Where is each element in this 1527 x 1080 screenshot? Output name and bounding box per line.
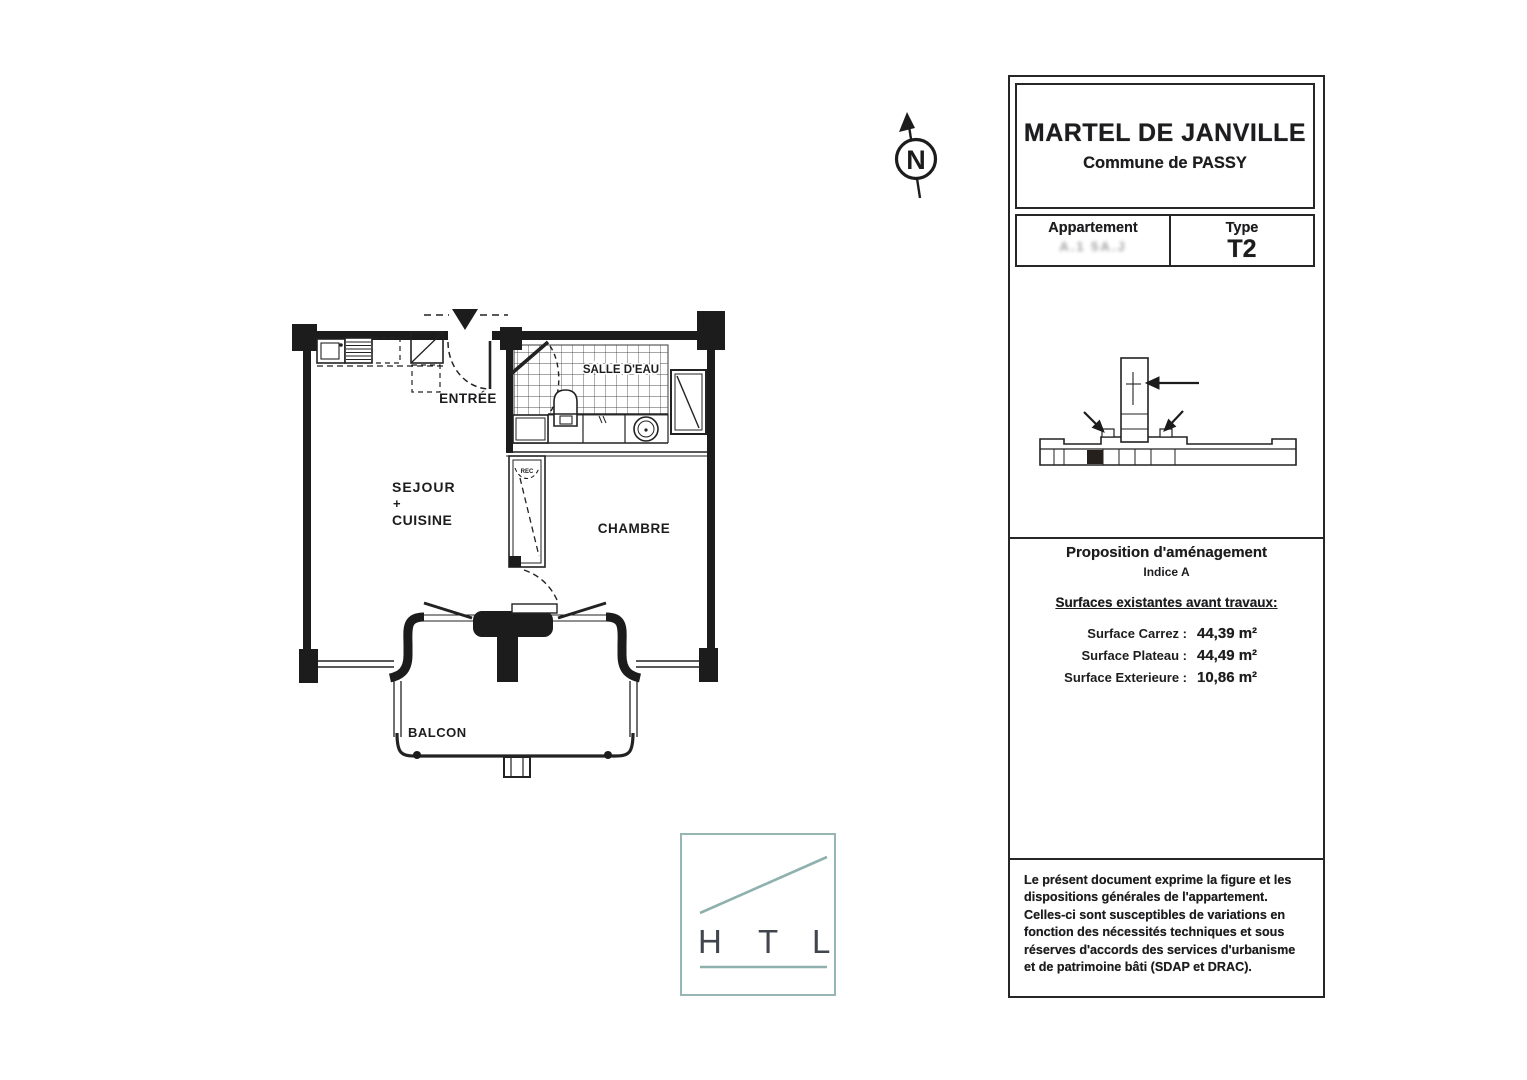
surface-label: Surface Plateau : bbox=[1010, 648, 1187, 663]
scanned-floor-plan-page: ENTRÉE SALLE D'EAU SEJOUR + CUISINE CHAM… bbox=[0, 0, 1527, 1080]
surface-value: 10,86 m² bbox=[1197, 669, 1257, 686]
floor-plan: ENTRÉE SALLE D'EAU SEJOUR + CUISINE CHAM… bbox=[288, 295, 748, 785]
apartment-location-marker bbox=[1087, 450, 1103, 464]
surfaces-heading: Surfaces existantes avant travaux: bbox=[1010, 595, 1323, 610]
apartment-type-row: Appartement A.1 5A.J Type T2 bbox=[1015, 214, 1315, 267]
entry-arrow-marker bbox=[452, 309, 478, 330]
kitchen-sink bbox=[321, 343, 339, 359]
label-closet-rec: REC bbox=[521, 469, 534, 475]
proposition-heading: Proposition d'aménagement bbox=[1010, 544, 1323, 561]
label-salle-deau: SALLE D'EAU bbox=[583, 364, 659, 376]
surface-value: 44,39 m² bbox=[1197, 625, 1257, 642]
logo-letter-h: H bbox=[698, 923, 722, 960]
type-cell: Type T2 bbox=[1171, 216, 1313, 265]
title-block-panel: MARTEL DE JANVILLE Commune de PASSY Appa… bbox=[1008, 75, 1325, 998]
label-plus: + bbox=[393, 496, 401, 511]
building-footprint bbox=[1040, 437, 1296, 465]
entrance-door bbox=[424, 309, 508, 389]
compass-arrowhead bbox=[899, 112, 915, 132]
legal-notice-box: Le présent document exprime la figure et… bbox=[1010, 858, 1323, 996]
logo-diagonal-line bbox=[700, 857, 827, 913]
apartment-cell: Appartement A.1 5A.J bbox=[1017, 216, 1171, 265]
surface-label: Surface Exterieure : bbox=[1010, 670, 1187, 685]
north-compass: N bbox=[884, 108, 948, 204]
commune-name: Commune de PASSY bbox=[1083, 154, 1247, 173]
label-balcon: BALCON bbox=[408, 725, 467, 740]
logo-letter-t: T bbox=[758, 923, 778, 960]
surface-row-carrez: Surface Carrez : 44,39 m² bbox=[1010, 622, 1323, 644]
label-entree: ENTRÉE bbox=[439, 391, 497, 406]
compass-north-letter: N bbox=[906, 145, 926, 175]
kitchen-counter bbox=[317, 332, 445, 392]
building-key-plan bbox=[1010, 267, 1323, 537]
type-label: Type bbox=[1226, 220, 1259, 236]
closet bbox=[509, 456, 557, 600]
project-title-box: MARTEL DE JANVILLE Commune de PASSY bbox=[1015, 83, 1315, 209]
surface-row-plateau: Surface Plateau : 44,49 m² bbox=[1010, 644, 1323, 666]
htl-logo-graphic: H T L bbox=[682, 835, 833, 993]
type-value: T2 bbox=[1227, 237, 1256, 262]
logo-letter-l: L bbox=[812, 923, 830, 960]
surface-label: Surface Carrez : bbox=[1010, 626, 1187, 641]
project-name: MARTEL DE JANVILLE bbox=[1024, 119, 1306, 148]
surface-row-exterieure: Surface Exterieure : 10,86 m² bbox=[1010, 666, 1323, 688]
balcony-doors bbox=[318, 603, 700, 682]
label-cuisine: CUISINE bbox=[392, 512, 452, 528]
apartment-number-smudged: A.1 5A.J bbox=[1059, 239, 1126, 254]
section-divider bbox=[1010, 537, 1323, 539]
label-sejour: SEJOUR bbox=[392, 479, 456, 495]
apartment-label: Appartement bbox=[1048, 220, 1137, 236]
legal-text: Le présent document exprime la figure et… bbox=[1024, 872, 1309, 976]
bathroom-tile-floor bbox=[514, 345, 668, 415]
indice-label: Indice A bbox=[1010, 565, 1323, 579]
surface-value: 44,49 m² bbox=[1197, 647, 1257, 664]
htl-logo: H T L bbox=[680, 833, 836, 996]
label-chambre: CHAMBRE bbox=[598, 521, 671, 536]
